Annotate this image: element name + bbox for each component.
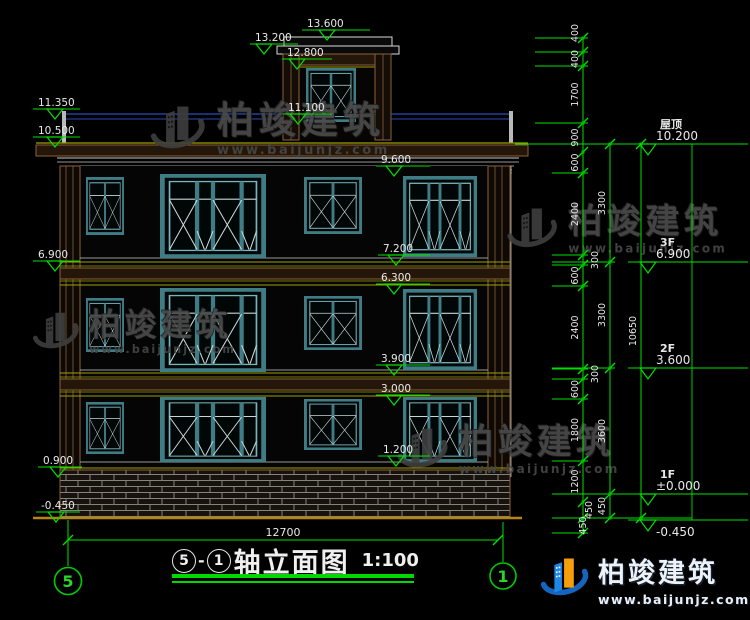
brand-logo: 柏竣建筑 www.baijunjz.com	[536, 549, 750, 609]
title-underline-thick	[172, 574, 414, 578]
penthouse-window	[307, 69, 355, 121]
penthouse-body	[283, 54, 391, 140]
brick-plinth	[33, 462, 522, 518]
brand-site: www.baijunjz.com	[598, 592, 750, 607]
building-elevation-linework	[0, 0, 750, 620]
title-dash: -	[198, 551, 205, 570]
title-scale: 1:100	[362, 550, 419, 571]
brand-logo-icon	[536, 549, 590, 609]
title-underline-thin	[172, 581, 414, 583]
floor-band-3f	[60, 258, 510, 285]
elevation-drawing-canvas: 柏竣建筑 www.baijunjz.com 柏竣建筑 www.baijunjz.…	[0, 0, 750, 620]
brand-name: 柏竣建筑	[598, 551, 750, 590]
title-axis-bubble-1: 1	[207, 549, 231, 573]
title-axis-bubble-5: 5	[172, 549, 196, 573]
penthouse-roof-cap	[277, 37, 399, 54]
